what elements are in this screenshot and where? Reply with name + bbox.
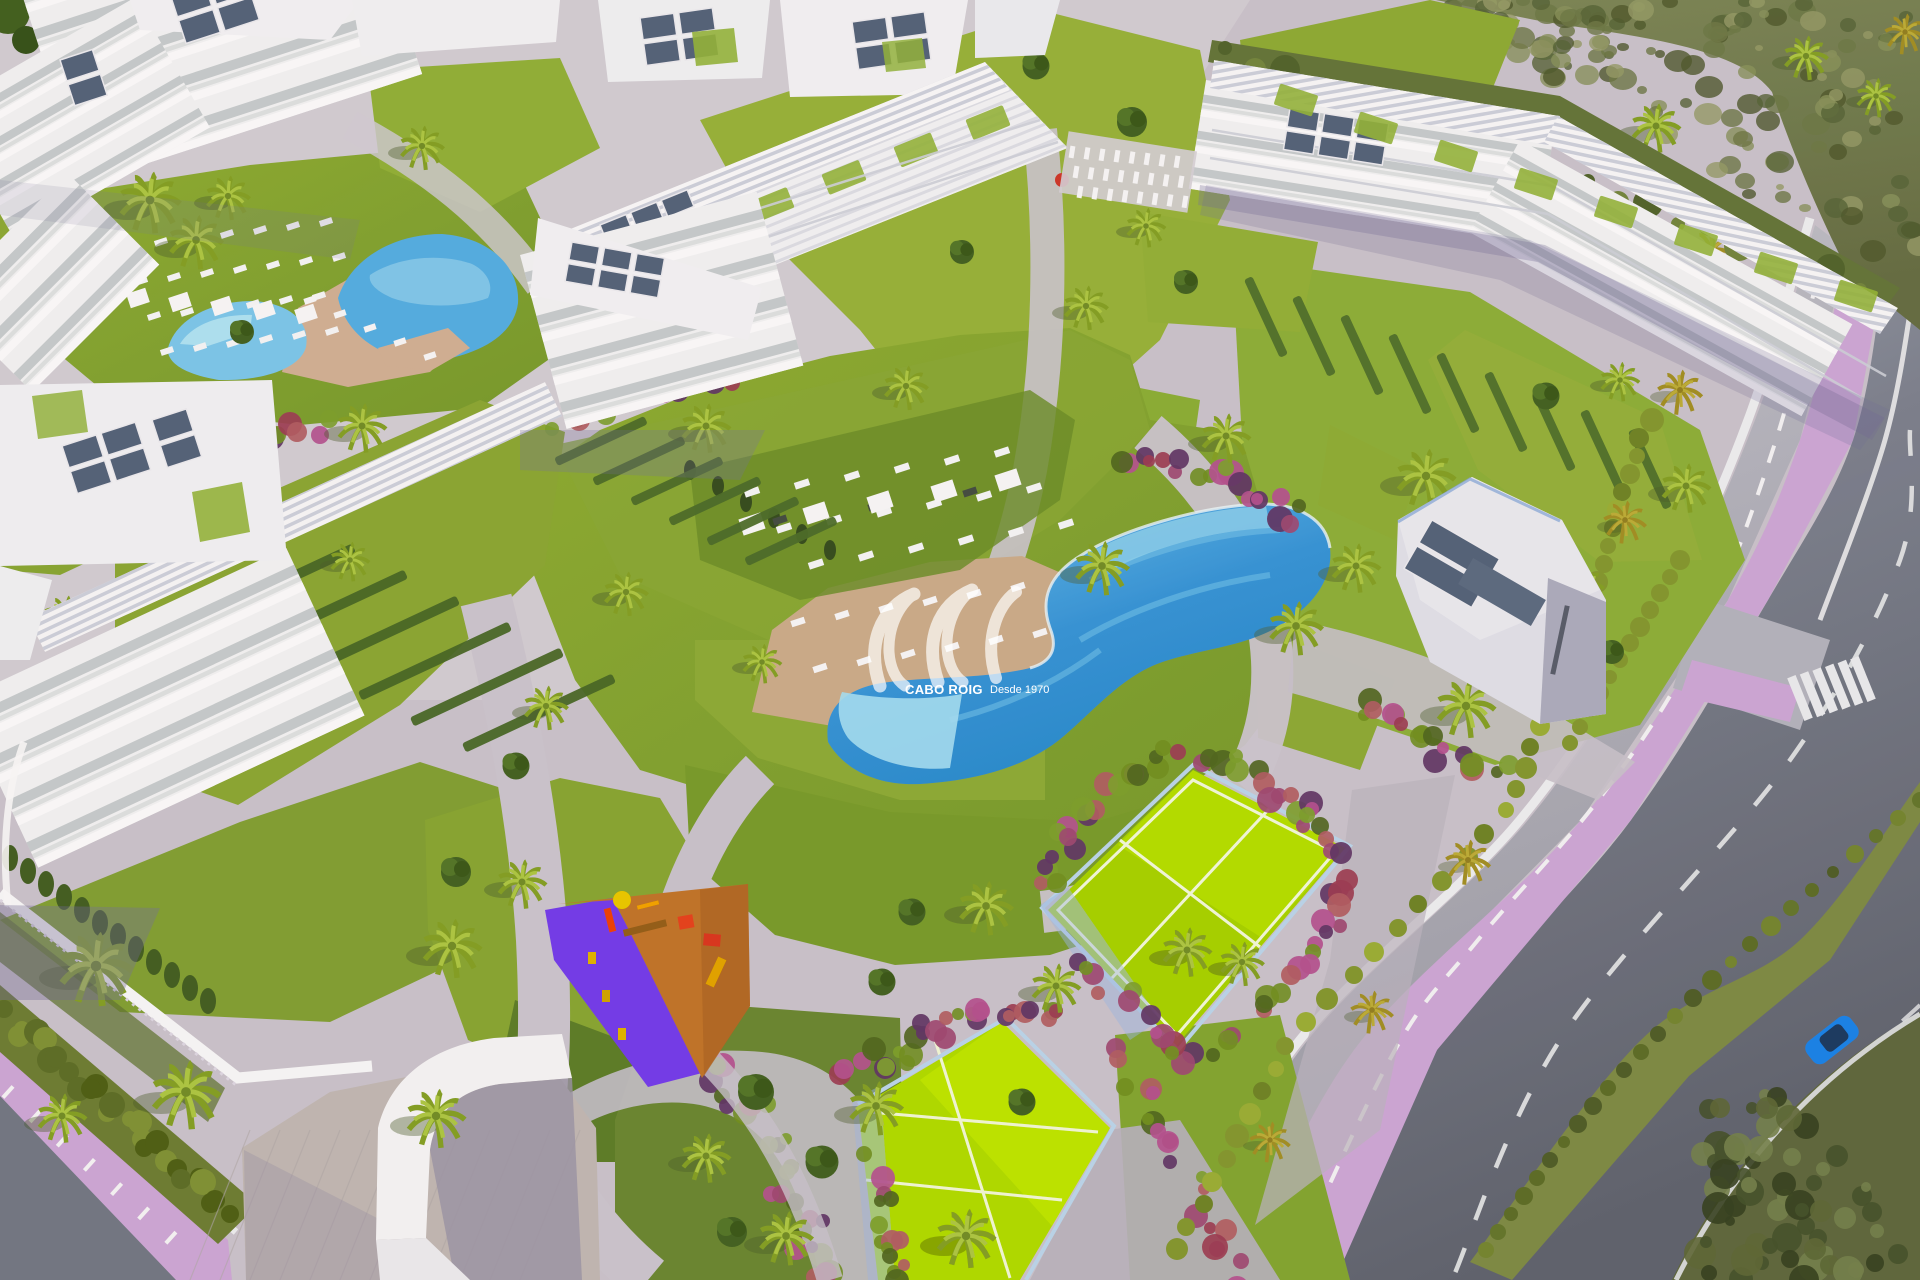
svg-text:CABO ROIG: CABO ROIG xyxy=(905,682,983,697)
svg-text:Desde 1970: Desde 1970 xyxy=(990,684,1049,696)
